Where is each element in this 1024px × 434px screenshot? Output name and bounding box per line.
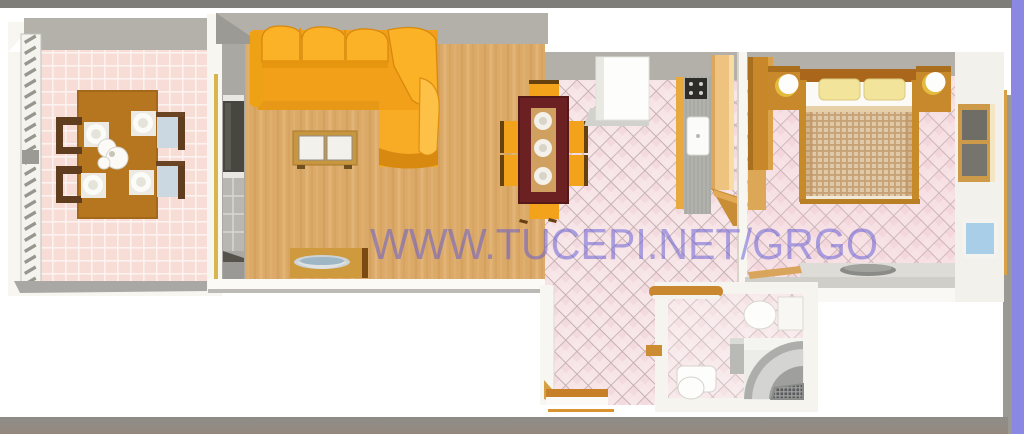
svg-text:WWW.TUCEPI.NET/GRGO: WWW.TUCEPI.NET/GRGO bbox=[370, 220, 878, 269]
